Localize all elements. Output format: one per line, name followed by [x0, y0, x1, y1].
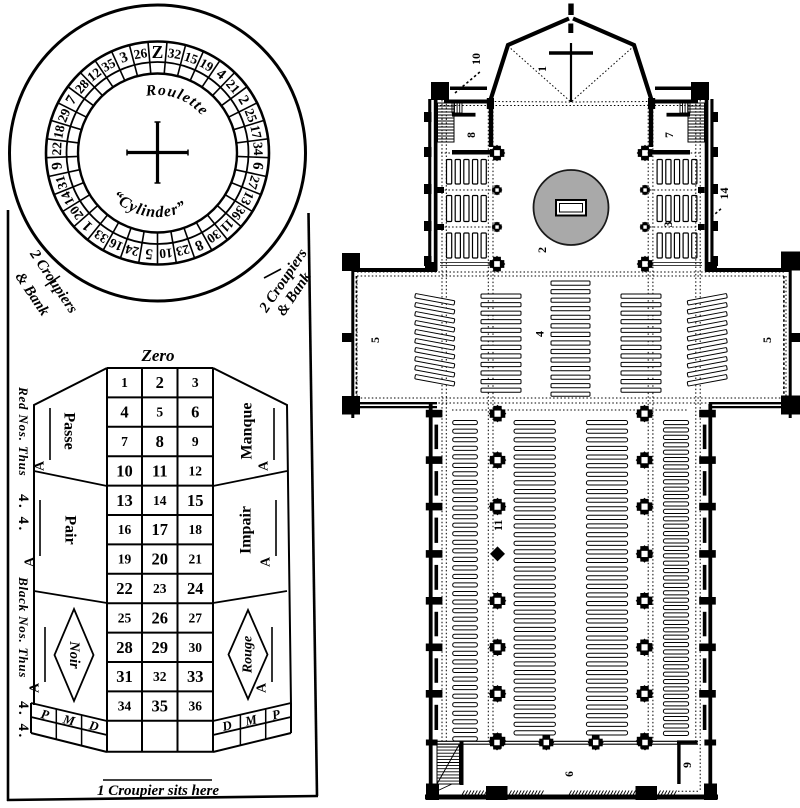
- svg-text:Passe: Passe: [61, 412, 78, 449]
- svg-text:5: 5: [760, 337, 774, 343]
- svg-text:5: 5: [368, 337, 382, 343]
- svg-text:34: 34: [250, 142, 266, 156]
- svg-text:26: 26: [133, 45, 149, 62]
- svg-text:4: 4: [120, 403, 128, 422]
- svg-text:19: 19: [118, 552, 132, 567]
- svg-text:23: 23: [153, 581, 167, 596]
- svg-text:10: 10: [116, 461, 133, 480]
- svg-text:A: A: [33, 460, 48, 471]
- svg-text:6: 6: [564, 771, 576, 777]
- svg-text:33: 33: [187, 667, 204, 686]
- svg-text:4. 4.: 4. 4.: [15, 701, 31, 740]
- svg-text:A: A: [257, 460, 272, 471]
- svg-text:35: 35: [152, 697, 169, 716]
- svg-text:24: 24: [187, 579, 204, 598]
- svg-text:1 Croupier sits here: 1 Croupier sits here: [97, 783, 219, 799]
- svg-text:Noir: Noir: [66, 640, 82, 669]
- svg-text:18: 18: [188, 522, 202, 537]
- svg-text:30: 30: [188, 640, 202, 655]
- svg-text:6: 6: [191, 403, 199, 422]
- svg-text:A: A: [255, 682, 270, 693]
- svg-text:26: 26: [152, 608, 169, 627]
- svg-text:9: 9: [192, 434, 199, 449]
- svg-text:7: 7: [664, 132, 676, 138]
- svg-text:12: 12: [188, 463, 202, 478]
- svg-text:32: 32: [167, 45, 183, 62]
- svg-text:36: 36: [188, 699, 202, 714]
- svg-text:9: 9: [682, 762, 694, 768]
- svg-text:Z: Z: [152, 42, 164, 62]
- svg-text:Pair: Pair: [62, 515, 79, 544]
- svg-text:2: 2: [156, 373, 164, 392]
- svg-text:Rouge: Rouge: [241, 636, 256, 674]
- svg-text:3: 3: [192, 375, 199, 390]
- svg-text:11: 11: [491, 520, 505, 531]
- svg-text:22: 22: [49, 141, 65, 155]
- svg-text:1: 1: [121, 375, 128, 390]
- svg-text:Zero: Zero: [140, 346, 174, 365]
- svg-text:15: 15: [187, 491, 204, 510]
- svg-text:29: 29: [152, 638, 169, 657]
- svg-text:17: 17: [152, 520, 169, 539]
- svg-text:21: 21: [188, 552, 202, 567]
- svg-text:31: 31: [116, 667, 133, 686]
- svg-text:A: A: [23, 556, 38, 567]
- svg-text:14: 14: [717, 188, 731, 200]
- svg-text:3: 3: [661, 222, 675, 228]
- svg-text:13: 13: [116, 491, 133, 510]
- svg-text:Manque: Manque: [239, 403, 256, 460]
- svg-text:14: 14: [153, 493, 167, 508]
- svg-text:16: 16: [118, 522, 132, 537]
- svg-text:Impair: Impair: [238, 506, 255, 554]
- svg-text:4. 4.: 4. 4.: [15, 494, 31, 533]
- svg-text:34: 34: [118, 699, 132, 714]
- svg-text:Black Nos. Thus: Black Nos. Thus: [16, 576, 31, 678]
- svg-text:32: 32: [153, 669, 167, 684]
- svg-text:8: 8: [156, 432, 164, 451]
- svg-text:22: 22: [116, 579, 133, 598]
- svg-text:10: 10: [158, 245, 173, 261]
- svg-text:10: 10: [469, 53, 483, 65]
- svg-text:2: 2: [535, 247, 549, 253]
- svg-text:11: 11: [152, 461, 168, 480]
- svg-text:Red Nos. Thus: Red Nos. Thus: [16, 386, 31, 477]
- svg-text:7: 7: [121, 434, 128, 449]
- svg-text:A: A: [259, 556, 274, 567]
- svg-text:4: 4: [533, 331, 547, 337]
- svg-text:25: 25: [118, 610, 132, 625]
- svg-text:1: 1: [535, 66, 549, 72]
- svg-text:5: 5: [145, 245, 154, 262]
- svg-text:A: A: [28, 682, 43, 693]
- svg-text:27: 27: [188, 610, 202, 625]
- svg-text:8: 8: [466, 132, 478, 138]
- svg-text:5: 5: [156, 405, 163, 420]
- svg-text:20: 20: [152, 550, 169, 569]
- svg-text:28: 28: [116, 638, 133, 657]
